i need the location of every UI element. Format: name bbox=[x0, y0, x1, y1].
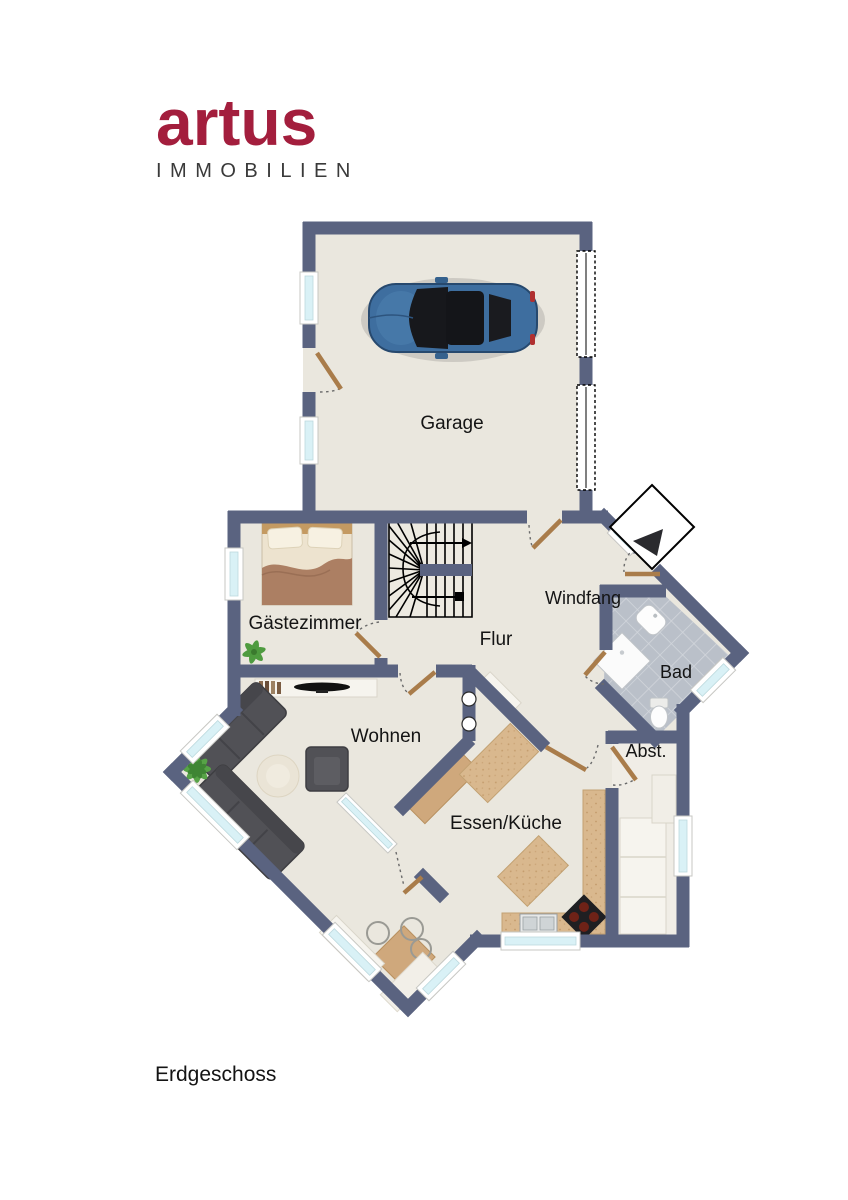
room-label-wohnen: Wohnen bbox=[351, 726, 421, 747]
sink-icon bbox=[520, 914, 557, 933]
floor-plan: Garage Gästezimmer Flur Windfang Bad Woh… bbox=[0, 0, 848, 1200]
bed bbox=[262, 521, 352, 605]
room-label-flur: Flur bbox=[480, 629, 513, 650]
tv-sideboard bbox=[255, 679, 377, 697]
room-label-abstellraum: Abst. bbox=[625, 741, 666, 761]
rug bbox=[257, 755, 299, 797]
garage-floor bbox=[303, 222, 592, 523]
toilet-icon bbox=[650, 698, 668, 728]
room-label-garage: Garage bbox=[420, 413, 483, 434]
room-label-essen-kueche: Essen/Küche bbox=[450, 813, 562, 834]
armchair bbox=[306, 747, 348, 791]
room-label-bad: Bad bbox=[660, 662, 692, 682]
floor-title: Erdgeschoss bbox=[155, 1063, 276, 1087]
stairs-icon bbox=[389, 520, 472, 617]
room-label-windfang: Windfang bbox=[545, 588, 621, 608]
car-icon bbox=[361, 277, 545, 362]
room-label-gaestezimmer: Gästezimmer bbox=[249, 613, 363, 634]
